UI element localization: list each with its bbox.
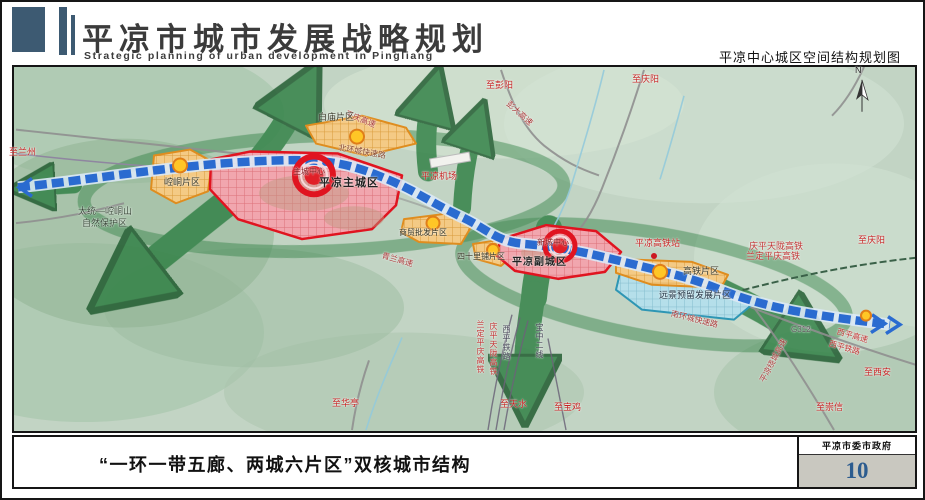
figure-caption: “一环一带五廊、两城六片区”双核城市结构 xyxy=(99,451,471,477)
map-title: 平凉中心城区空间结构规划图 xyxy=(719,47,901,66)
rail-station-dot xyxy=(651,253,657,259)
page-subtitle: Strategic planning of urban development … xyxy=(84,50,434,62)
header-accent-bar xyxy=(59,7,67,55)
caption-bar: “一环一带五廊、两城六片区”双核城市结构 平凉市委市政府 10 xyxy=(12,435,917,489)
map-graphics xyxy=(14,67,915,431)
agency-label: 平凉市委市政府 xyxy=(799,437,915,455)
header-accent-square xyxy=(12,7,45,52)
page-number: 10 xyxy=(799,455,915,487)
header-accent-bar-thin xyxy=(71,15,75,55)
spatial-structure-map xyxy=(12,65,917,433)
title-block: 平凉市委市政府 10 xyxy=(797,437,915,487)
planning-sheet: 平凉市城市发展战略规划 Strategic planning of urban … xyxy=(0,0,925,500)
